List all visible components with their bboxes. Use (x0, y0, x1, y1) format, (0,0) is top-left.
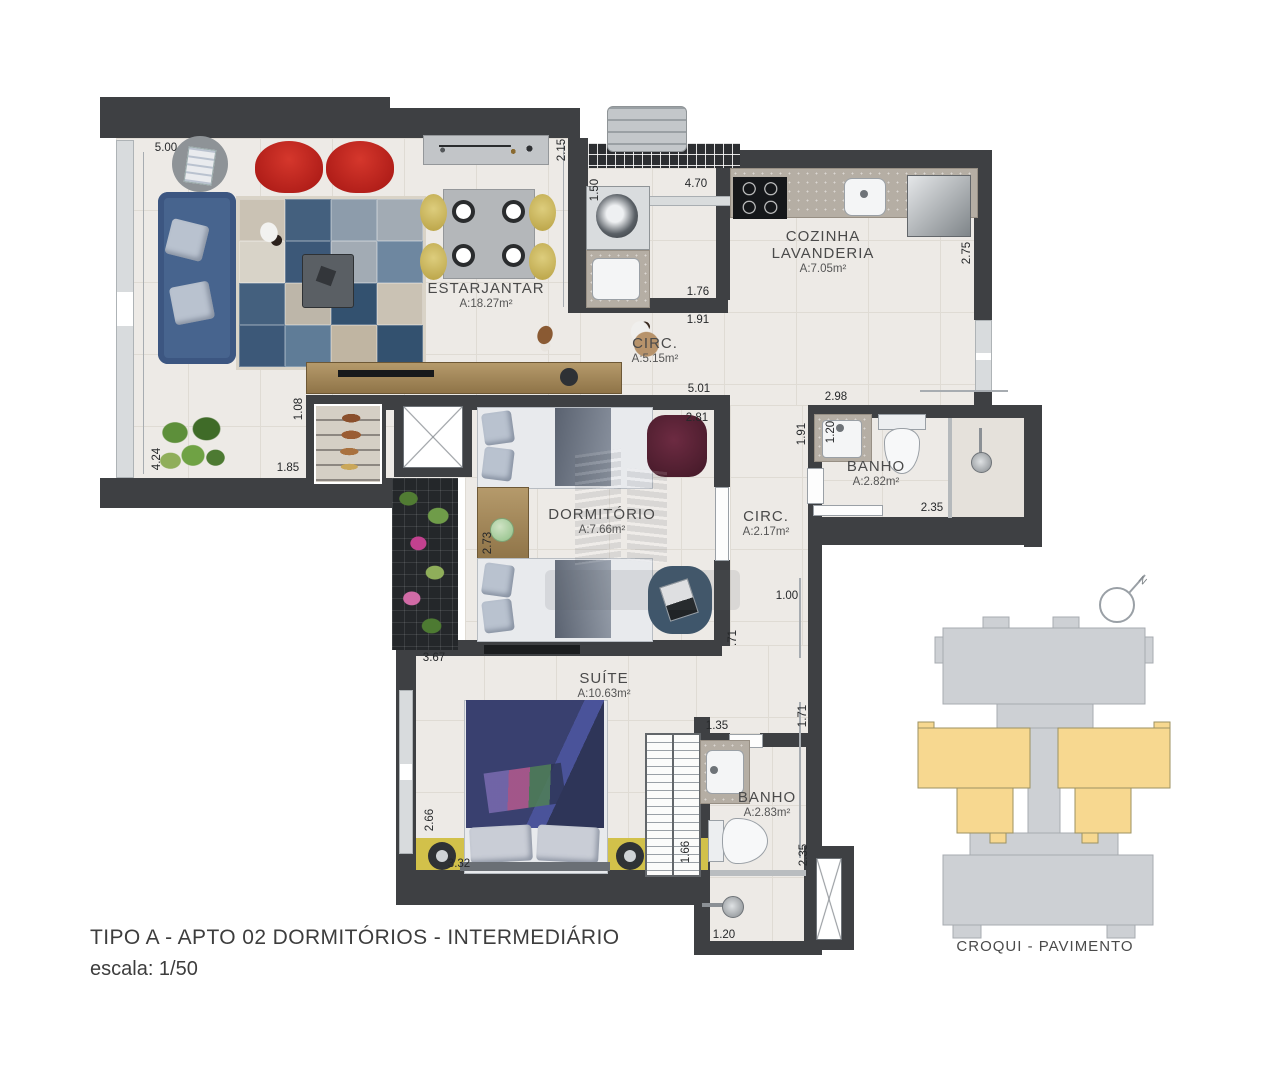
kitchen-window (975, 320, 992, 392)
dimension-label: 3.32 (448, 858, 470, 870)
highlighted-unit-right (1058, 722, 1170, 843)
balcony-plant (148, 406, 238, 482)
wall-segment (808, 545, 822, 735)
wall-segment (716, 168, 730, 300)
dimension-label: 1.91 (796, 423, 808, 445)
wall-segment (100, 97, 390, 138)
magazine (184, 146, 217, 186)
room-label: COZINHALAVANDERIAA:7.05m² (772, 228, 875, 275)
plan-scale: escala: 1/50 (90, 958, 198, 981)
vertical-garden (392, 478, 458, 650)
dimension-label: 1.91 (687, 314, 709, 326)
nightstand-lamp (436, 850, 448, 862)
dining-table (443, 189, 535, 279)
dimension-line (563, 142, 564, 307)
console-decor (560, 368, 578, 386)
dimension-label: 2.98 (825, 391, 847, 403)
bed1-pillow (481, 446, 515, 481)
dimension-line (143, 152, 144, 474)
bath1-faucet (836, 424, 844, 432)
sofa (158, 192, 236, 364)
dimension-label: 2.66 (424, 809, 436, 831)
dining-chair (529, 243, 556, 280)
bath2-shower-head (722, 896, 744, 918)
refrigerator (907, 175, 971, 237)
dimension-label: 4.70 (685, 178, 707, 190)
dimension-label: 1.35 (706, 720, 728, 732)
sofa-pillow (169, 281, 216, 326)
room-label: BANHOA:2.82m² (847, 458, 905, 488)
living-window-band (116, 140, 134, 478)
bed2-pillow (481, 562, 515, 598)
bed2-pillow (481, 598, 515, 633)
place-setting (452, 244, 475, 267)
suite-pillow (469, 824, 533, 863)
bath-social-door-leaf (813, 505, 883, 516)
sideboard (423, 135, 549, 165)
suite-tv (484, 645, 580, 654)
north-label: N (1136, 574, 1149, 587)
bath-social-door-opening (807, 468, 824, 504)
tv-soundbar (338, 370, 434, 377)
dimension-label: 1.20 (713, 929, 735, 941)
bed1-pillow (481, 410, 515, 446)
dimension-label: 2.35 (798, 844, 810, 866)
watermark (545, 452, 740, 627)
dining-chair (420, 194, 447, 231)
dimension-label: 1.50 (589, 179, 601, 201)
place-setting (452, 200, 475, 223)
wall-segment (383, 108, 580, 138)
room-label: DORMITÓRIOA:7.66m² (548, 506, 656, 536)
bath2-shower-divider (710, 870, 806, 876)
room-label: BANHOA:2.83m² (738, 789, 796, 819)
dimension-label: 2.35 (921, 502, 943, 514)
washer-door (596, 194, 638, 238)
nightstand-lamp (624, 850, 636, 862)
dimension-label: 1.71 (797, 705, 809, 727)
place-setting (502, 244, 525, 267)
bath2-faucet (710, 766, 718, 774)
laundry-tank (592, 258, 640, 300)
wall-segment (808, 517, 1042, 545)
suite-window-band (399, 690, 413, 854)
dimension-label: 1.20 (825, 421, 837, 443)
croqui-label: CROQUI - PAVIMENTO (956, 938, 1133, 955)
place-setting (502, 200, 525, 223)
shaft-2 (816, 858, 842, 940)
room-label: ESTARJANTARA:18.27m² (427, 280, 544, 310)
dimension-label: 1.08 (293, 398, 305, 420)
dimension-label: 1.00 (776, 590, 798, 602)
cooktop (733, 177, 787, 219)
kitchen-faucet (860, 190, 868, 198)
wall-segment (568, 138, 588, 313)
wall-segment (694, 941, 822, 955)
ac-condenser-unit (607, 106, 687, 152)
floor-plan-sheet: N CROQUI - PAVIMENTO ESTAR (0, 0, 1280, 1085)
highlighted-unit-left (918, 722, 1030, 843)
elevator-shaft (403, 406, 463, 468)
headboard (460, 862, 610, 871)
croqui-pavimento: N (895, 565, 1195, 955)
dining-chair (529, 194, 556, 231)
shower-glass (948, 418, 952, 518)
dimension-label: 1.76 (687, 286, 709, 298)
suite-pillow (536, 824, 600, 863)
dimension-label: 3.67 (423, 652, 445, 664)
closet-wardrobe (645, 733, 701, 877)
plan-title: TIPO A - APTO 02 DORMITÓRIOS - INTERMEDI… (90, 926, 619, 950)
lounge-chair-red (255, 141, 323, 193)
dimension-label: 5.01 (688, 383, 710, 395)
bed-duvet (466, 700, 604, 828)
shower-head (971, 452, 992, 473)
dimension-label: 2.81 (686, 412, 708, 424)
dimension-label: 5.00 (155, 142, 177, 154)
dimension-label: 2.75 (961, 242, 973, 264)
dimension-line (920, 390, 1008, 392)
wall-segment (760, 733, 810, 747)
dimension-label: 2.73 (482, 532, 494, 554)
room-label: CIRC.A:5.15m² (632, 335, 679, 365)
barbecue-grill (314, 404, 382, 484)
dimension-line (799, 578, 801, 658)
room-label: SUÍTEA:10.63m² (577, 670, 630, 700)
dimension-label: .71 (727, 630, 739, 646)
lounge-chair-red (326, 141, 394, 193)
shower-arm (979, 428, 982, 454)
dimension-label: 2.15 (556, 139, 568, 161)
dimension-label: 1.85 (277, 462, 299, 474)
room-label: CIRC.A:2.17m² (743, 508, 790, 538)
dining-chair (420, 243, 447, 280)
dimension-label: 1.66 (680, 841, 692, 863)
dimension-label: 4.24 (151, 448, 163, 470)
